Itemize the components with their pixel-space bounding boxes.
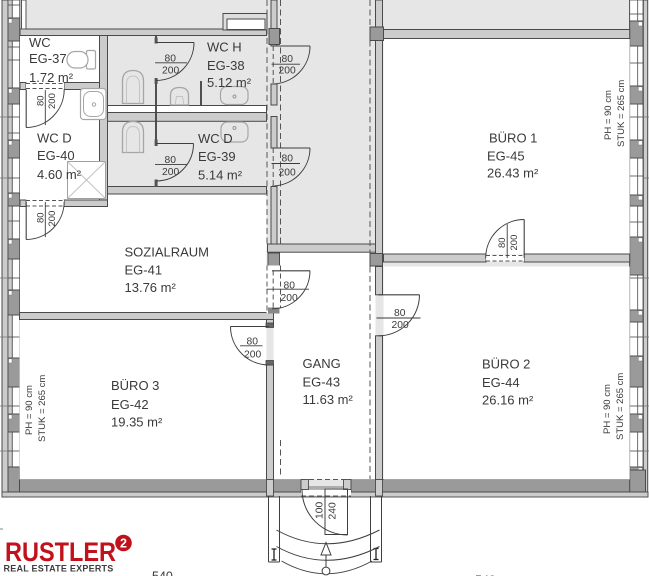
svg-text:SOZIALRAUM: SOZIALRAUM [125,245,210,260]
svg-text:STUK = 265 cm: STUK = 265 cm [37,375,48,442]
svg-text:200: 200 [509,235,520,251]
svg-text:13.76 m²: 13.76 m² [125,280,177,295]
svg-text:200: 200 [244,349,261,360]
svg-text:4.60 m²: 4.60 m² [37,167,82,182]
svg-text:2: 2 [120,537,127,551]
svg-text:80: 80 [394,308,406,319]
svg-text:PH = 90 cm: PH = 90 cm [602,384,613,434]
svg-text:80: 80 [497,237,508,248]
svg-text:200: 200 [47,93,58,109]
svg-text:WC D: WC D [198,131,233,146]
svg-text:5.12 m²: 5.12 m² [207,75,252,90]
svg-text:STUK = 265 cm: STUK = 265 cm [615,373,626,440]
svg-text:WC D: WC D [37,131,72,146]
svg-text:1.72 m²: 1.72 m² [29,70,74,85]
svg-text:EG-43: EG-43 [303,375,341,390]
svg-text:EG-41: EG-41 [125,263,163,278]
svg-text:PH = 90 cm: PH = 90 cm [603,90,614,140]
svg-text:REAL ESTATE EXPERTS: REAL ESTATE EXPERTS [4,564,116,574]
svg-text:EG-38: EG-38 [207,58,245,73]
svg-text:EG-45: EG-45 [487,149,525,164]
svg-text:200: 200 [162,167,179,178]
svg-text:80: 80 [35,212,46,223]
svg-text:EG-40: EG-40 [37,148,75,163]
svg-text:5.14 m²: 5.14 m² [198,168,243,183]
svg-text:540: 540 [152,570,173,576]
svg-text:EG-44: EG-44 [482,375,520,390]
svg-text:BÜRO 2: BÜRO 2 [482,357,530,372]
svg-text:80: 80 [282,54,294,65]
svg-text:100: 100 [315,502,326,519]
svg-text:200: 200 [281,293,298,304]
svg-text:WC: WC [29,35,51,50]
svg-text:STUK = 265 cm: STUK = 265 cm [616,80,627,147]
svg-text:EG-39: EG-39 [198,149,236,164]
svg-text:11.63 m²: 11.63 m² [303,392,354,407]
svg-text:BÜRO 3: BÜRO 3 [111,378,159,393]
svg-text:200: 200 [392,320,409,331]
svg-text:EG-37: EG-37 [29,51,67,66]
svg-text:26.16 m²: 26.16 m² [482,393,534,408]
svg-text:200: 200 [279,66,296,77]
svg-text:240: 240 [328,502,339,519]
svg-text:200: 200 [47,211,58,227]
svg-text:80: 80 [36,95,47,106]
svg-text:WC H: WC H [207,39,242,54]
svg-text:BÜRO 1: BÜRO 1 [489,131,537,146]
svg-text:26.43 m²: 26.43 m² [487,166,539,181]
svg-text:200: 200 [162,65,179,76]
svg-text:EG-42: EG-42 [111,397,149,412]
svg-text:RUSTLER: RUSTLER [5,537,116,567]
svg-text:GANG: GANG [303,356,341,371]
svg-text:200: 200 [279,167,296,178]
svg-text:19.35 m²: 19.35 m² [111,415,163,430]
svg-text:PH = 90 cm: PH = 90 cm [24,385,35,435]
